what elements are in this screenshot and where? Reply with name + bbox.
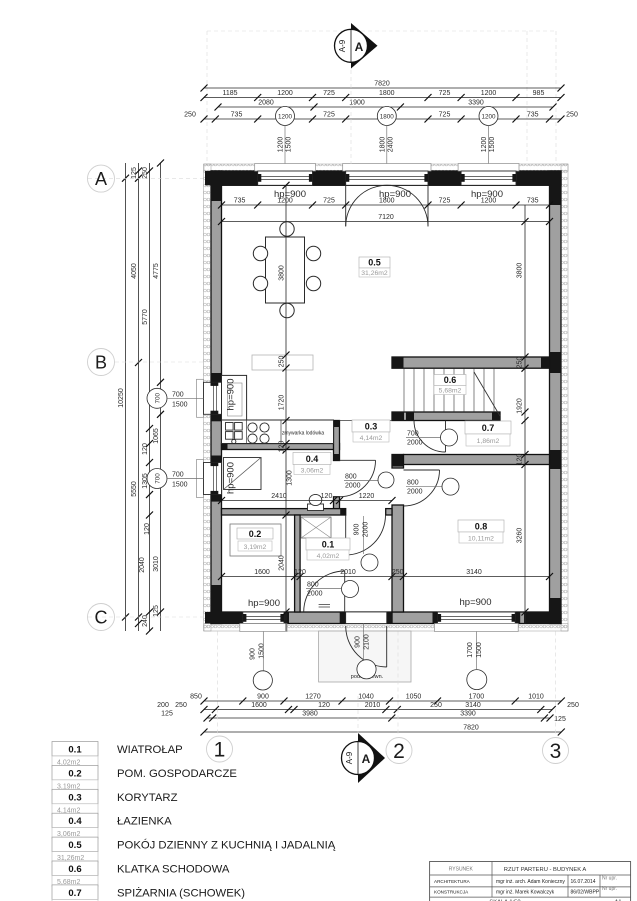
svg-text:1050: 1050 bbox=[406, 694, 422, 701]
svg-text:2040: 2040 bbox=[139, 557, 146, 573]
svg-text:3800: 3800 bbox=[517, 263, 524, 279]
svg-text:1010: 1010 bbox=[528, 694, 544, 701]
svg-text:10,11m2: 10,11m2 bbox=[468, 536, 494, 543]
svg-text:700: 700 bbox=[154, 473, 161, 484]
svg-text:7820: 7820 bbox=[463, 725, 479, 732]
svg-text:2400: 2400 bbox=[388, 137, 395, 153]
svg-text:3010: 3010 bbox=[153, 556, 160, 572]
svg-text:4775: 4775 bbox=[153, 263, 160, 279]
svg-text:0.5: 0.5 bbox=[368, 258, 381, 268]
svg-text:125: 125 bbox=[153, 605, 160, 617]
svg-text:hp=900: hp=900 bbox=[226, 462, 237, 494]
svg-text:2000: 2000 bbox=[345, 483, 361, 490]
svg-text:3390: 3390 bbox=[460, 711, 476, 718]
svg-text:hp=900: hp=900 bbox=[248, 598, 280, 609]
svg-text:700: 700 bbox=[407, 431, 419, 438]
svg-text:10250: 10250 bbox=[118, 388, 125, 408]
svg-text:A: A bbox=[355, 40, 364, 54]
svg-text:2100: 2100 bbox=[364, 634, 371, 650]
svg-text:250: 250 bbox=[517, 357, 524, 369]
svg-text:ŁAZIENKA: ŁAZIENKA bbox=[117, 816, 172, 828]
svg-text:900: 900 bbox=[250, 648, 257, 660]
svg-text:16.07.2014: 16.07.2014 bbox=[571, 879, 596, 885]
svg-text:900: 900 bbox=[257, 694, 269, 701]
svg-text:3,19m2: 3,19m2 bbox=[244, 544, 267, 551]
svg-text:A-9: A-9 bbox=[345, 751, 354, 764]
svg-text:250: 250 bbox=[142, 167, 149, 179]
svg-text:mgr inż. Marek Kowalczyk: mgr inż. Marek Kowalczyk bbox=[496, 890, 555, 896]
svg-text:4,02m2: 4,02m2 bbox=[317, 553, 340, 560]
svg-text:125: 125 bbox=[161, 711, 173, 718]
svg-text:735: 735 bbox=[527, 112, 539, 119]
svg-text:2000: 2000 bbox=[407, 440, 423, 447]
svg-text:7820: 7820 bbox=[374, 81, 390, 88]
svg-text:5,68m2: 5,68m2 bbox=[439, 388, 462, 395]
svg-text:0.1: 0.1 bbox=[68, 745, 82, 756]
svg-text:3: 3 bbox=[550, 740, 562, 763]
svg-text:2010: 2010 bbox=[340, 569, 356, 576]
svg-text:2000: 2000 bbox=[407, 489, 423, 496]
svg-text:1220: 1220 bbox=[359, 493, 375, 500]
svg-text:1800: 1800 bbox=[380, 113, 395, 120]
svg-text:1,86m2: 1,86m2 bbox=[477, 438, 500, 445]
svg-text:31,26m2: 31,26m2 bbox=[361, 270, 388, 277]
svg-text:B: B bbox=[95, 352, 107, 372]
svg-text:1200: 1200 bbox=[481, 137, 488, 153]
svg-text:1200: 1200 bbox=[481, 198, 497, 205]
svg-text:1200: 1200 bbox=[277, 90, 293, 97]
svg-text:725: 725 bbox=[439, 90, 451, 97]
svg-text:120: 120 bbox=[517, 454, 524, 466]
svg-text:5770: 5770 bbox=[142, 309, 149, 325]
svg-text:hp=900: hp=900 bbox=[226, 379, 237, 411]
svg-text:0.3: 0.3 bbox=[365, 422, 378, 432]
svg-text:725: 725 bbox=[323, 90, 335, 97]
svg-text:125: 125 bbox=[554, 716, 566, 723]
svg-text:2010: 2010 bbox=[365, 702, 381, 709]
svg-text:800: 800 bbox=[307, 582, 319, 589]
svg-text:POKÓJ DZIENNY Z KUCHNIĄ I JADA: POKÓJ DZIENNY Z KUCHNIĄ I JADALNIĄ bbox=[117, 839, 336, 852]
svg-text:725: 725 bbox=[439, 198, 451, 205]
svg-text:hp=900: hp=900 bbox=[460, 597, 492, 608]
svg-text:250: 250 bbox=[175, 702, 187, 709]
svg-text:5550: 5550 bbox=[131, 481, 138, 497]
svg-text:120: 120 bbox=[278, 441, 285, 453]
svg-text:1065: 1065 bbox=[153, 428, 160, 444]
svg-text:A-9: A-9 bbox=[338, 39, 347, 52]
svg-text:900: 900 bbox=[355, 636, 362, 648]
svg-text:200: 200 bbox=[157, 702, 169, 709]
svg-text:3140: 3140 bbox=[466, 569, 482, 576]
svg-text:3980: 3980 bbox=[302, 711, 318, 718]
svg-text:250: 250 bbox=[278, 356, 285, 368]
svg-text:7120: 7120 bbox=[378, 214, 394, 221]
svg-text:3800: 3800 bbox=[278, 265, 285, 281]
svg-text:120: 120 bbox=[318, 702, 330, 709]
svg-text:mgr inż. arch. Adam Konieczny: mgr inż. arch. Adam Konieczny bbox=[496, 879, 565, 885]
svg-text:86/02/WBPP: 86/02/WBPP bbox=[571, 890, 600, 896]
svg-text:985: 985 bbox=[533, 90, 545, 97]
svg-text:1500: 1500 bbox=[259, 643, 266, 659]
svg-text:4,14m2: 4,14m2 bbox=[360, 435, 383, 442]
svg-text:735: 735 bbox=[527, 198, 539, 205]
svg-text:C: C bbox=[95, 607, 108, 627]
svg-text:1200: 1200 bbox=[481, 90, 497, 97]
svg-text:0.7: 0.7 bbox=[482, 423, 495, 433]
svg-text:3260: 3260 bbox=[517, 528, 524, 544]
svg-text:0.1: 0.1 bbox=[322, 540, 335, 550]
svg-text:Nr upr.: Nr upr. bbox=[602, 876, 617, 882]
svg-text:4050: 4050 bbox=[131, 263, 138, 279]
svg-text:2000: 2000 bbox=[363, 522, 370, 538]
svg-text:3,06m2: 3,06m2 bbox=[301, 468, 324, 475]
svg-text:ARCHITEKTURA: ARCHITEKTURA bbox=[434, 879, 471, 884]
svg-text:1270: 1270 bbox=[305, 694, 321, 701]
svg-text:1700: 1700 bbox=[467, 642, 474, 658]
svg-text:RYSUNEK: RYSUNEK bbox=[449, 867, 474, 873]
svg-text:KONSTRUKCJA: KONSTRUKCJA bbox=[434, 890, 469, 895]
svg-text:850: 850 bbox=[190, 694, 202, 701]
svg-text:3140: 3140 bbox=[465, 702, 481, 709]
svg-text:1600: 1600 bbox=[254, 569, 270, 576]
svg-text:2410: 2410 bbox=[271, 493, 287, 500]
svg-text:1200: 1200 bbox=[481, 113, 496, 120]
svg-text:0.8: 0.8 bbox=[475, 522, 488, 532]
svg-text:SPIŻARNIA (SCHOWEK): SPIŻARNIA (SCHOWEK) bbox=[117, 886, 245, 899]
svg-text:0.6: 0.6 bbox=[444, 375, 457, 385]
svg-text:1500: 1500 bbox=[172, 401, 188, 408]
svg-text:700: 700 bbox=[172, 391, 184, 398]
svg-text:0.2: 0.2 bbox=[68, 768, 81, 779]
svg-text:1500: 1500 bbox=[489, 137, 496, 153]
svg-text:700: 700 bbox=[154, 393, 161, 404]
svg-text:2: 2 bbox=[393, 740, 405, 763]
svg-text:700: 700 bbox=[172, 472, 184, 479]
svg-text:KORYTARZ: KORYTARZ bbox=[117, 792, 178, 804]
svg-text:zmywarka lodówka: zmywarka lodówka bbox=[282, 431, 324, 437]
svg-text:250: 250 bbox=[567, 702, 579, 709]
svg-text:250: 250 bbox=[184, 112, 196, 119]
svg-text:0.7: 0.7 bbox=[68, 888, 81, 899]
svg-text:2040: 2040 bbox=[278, 555, 285, 571]
svg-text:800: 800 bbox=[407, 480, 419, 487]
svg-text:800: 800 bbox=[345, 474, 357, 481]
svg-text:725: 725 bbox=[439, 112, 451, 119]
svg-text:RZUT PARTERU - BUDYNEK A: RZUT PARTERU - BUDYNEK A bbox=[504, 867, 587, 873]
svg-text:0.4: 0.4 bbox=[68, 816, 82, 827]
svg-text:250: 250 bbox=[430, 702, 442, 709]
svg-text:3390: 3390 bbox=[468, 100, 484, 107]
svg-text:1200: 1200 bbox=[278, 113, 293, 120]
svg-text:1185: 1185 bbox=[222, 90, 237, 97]
svg-text:1200: 1200 bbox=[278, 137, 285, 153]
svg-text:A: A bbox=[362, 752, 371, 766]
svg-text:725: 725 bbox=[323, 112, 335, 119]
svg-text:1700: 1700 bbox=[469, 694, 485, 701]
svg-text:900: 900 bbox=[354, 524, 361, 536]
svg-text:120: 120 bbox=[294, 569, 306, 576]
svg-text:2000: 2000 bbox=[307, 591, 323, 598]
svg-text:120: 120 bbox=[321, 493, 333, 500]
svg-text:1800: 1800 bbox=[379, 198, 395, 205]
svg-text:1: 1 bbox=[214, 739, 226, 762]
svg-text:1800: 1800 bbox=[379, 90, 395, 97]
svg-text:1200: 1200 bbox=[277, 198, 293, 205]
svg-text:0.2: 0.2 bbox=[249, 529, 262, 539]
svg-text:1900: 1900 bbox=[349, 100, 365, 107]
svg-text:120: 120 bbox=[142, 443, 149, 455]
svg-text:735: 735 bbox=[231, 112, 243, 119]
svg-text:A: A bbox=[95, 169, 107, 189]
svg-text:725: 725 bbox=[323, 198, 335, 205]
svg-text:1920: 1920 bbox=[517, 398, 524, 414]
svg-text:1040: 1040 bbox=[358, 694, 374, 701]
svg-text:1500: 1500 bbox=[286, 137, 293, 153]
svg-text:120: 120 bbox=[144, 523, 151, 535]
svg-text:KLATKA SCHODOWA: KLATKA SCHODOWA bbox=[117, 864, 230, 876]
svg-text:0.4: 0.4 bbox=[306, 454, 319, 464]
svg-text:0.3: 0.3 bbox=[68, 792, 81, 803]
svg-text:1720: 1720 bbox=[278, 395, 285, 411]
svg-text:125: 125 bbox=[131, 167, 138, 179]
svg-text:735: 735 bbox=[234, 198, 246, 205]
svg-text:1500: 1500 bbox=[172, 482, 188, 489]
svg-text:POM. GOSPODARCZE: POM. GOSPODARCZE bbox=[117, 768, 237, 780]
svg-text:0.5: 0.5 bbox=[68, 840, 82, 851]
svg-text:Nr upr.: Nr upr. bbox=[602, 886, 617, 892]
svg-text:1500: 1500 bbox=[476, 642, 483, 658]
svg-text:WIATROŁAP: WIATROŁAP bbox=[117, 744, 183, 756]
svg-text:2080: 2080 bbox=[258, 100, 274, 107]
svg-text:1600: 1600 bbox=[251, 702, 267, 709]
svg-text:250: 250 bbox=[392, 569, 404, 576]
svg-text:1800: 1800 bbox=[380, 137, 387, 153]
svg-text:250: 250 bbox=[566, 112, 578, 119]
svg-text:1300: 1300 bbox=[286, 470, 293, 486]
svg-text:0.6: 0.6 bbox=[68, 864, 81, 875]
